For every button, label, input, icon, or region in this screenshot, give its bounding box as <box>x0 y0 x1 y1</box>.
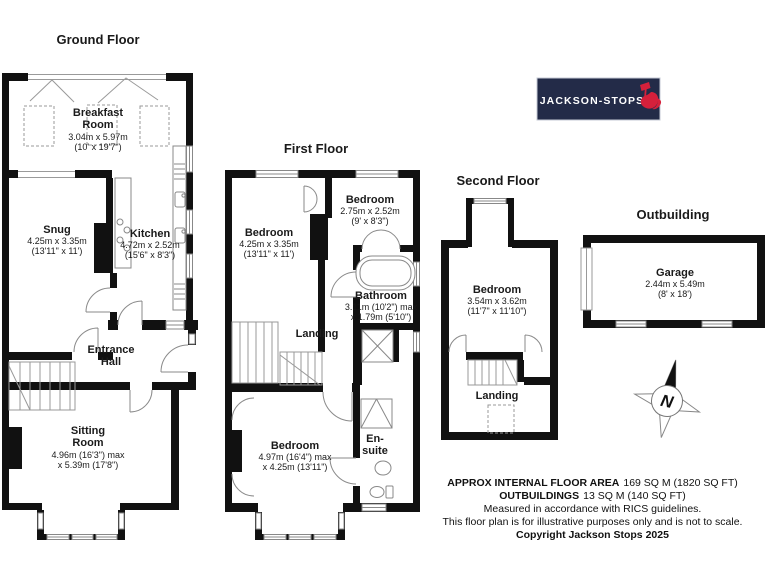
jackson-stops-logo: JACKSON-STOPS <box>537 78 661 120</box>
room-label-bathroom: Bathroom 3.11m (10'2") max x 1.79m (5'10… <box>331 290 431 322</box>
room-dims-imperial: (8' x 18') <box>625 289 725 299</box>
compass-rose: N <box>627 353 709 444</box>
room-name: Landing <box>457 390 537 402</box>
second-floor-title: Second Floor <box>438 173 558 188</box>
room-name: Kitchen <box>102 228 198 240</box>
second-floor-plan <box>441 198 558 440</box>
room-dims-metric: 2.75m x 2.52m <box>320 206 420 216</box>
room-name: Bedroom <box>447 284 547 296</box>
room-dims-imperial: (10' x 19'7") <box>48 142 148 152</box>
room-name: Bedroom <box>219 227 319 239</box>
room-name: Snug <box>12 224 102 236</box>
bathtub-icon <box>356 256 415 290</box>
room-dims-metric: 2.44m x 5.49m <box>625 279 725 289</box>
room-name: Garage <box>625 267 725 279</box>
room-dims-metric: 3.54m x 3.62m <box>447 296 547 306</box>
room-dims-imperial: x 4.25m (13'11") <box>240 462 350 472</box>
outbuildings-label: OUTBUILDINGS <box>499 490 579 502</box>
second-floor-walls <box>441 198 558 440</box>
internal-floor-area-label: APPROX INTERNAL FLOOR AREA <box>447 477 619 489</box>
floor-area-notes: APPROX INTERNAL FLOOR AREA169 SQ M (1820… <box>420 477 765 542</box>
room-label-ensuite: En-suite <box>352 433 398 458</box>
room-dims-imperial: (13'11" x 11') <box>12 246 102 256</box>
outbuildings-value: 13 SQ M (140 SQ FT) <box>583 490 686 502</box>
room-name: Bedroom <box>320 194 420 206</box>
room-dims-metric: 4.97m (16'4") max <box>240 452 350 462</box>
room-dims-imperial: (9' x 8'3") <box>320 216 420 226</box>
room-label-kitchen: Kitchen 4.72m x 2.52m (15'6" x 8'3") <box>102 228 198 260</box>
ground-floor-title: Ground Floor <box>38 32 158 47</box>
loft-hatch <box>488 405 514 433</box>
room-dims-metric: 3.11m (10'2") max <box>331 302 431 312</box>
room-label-snug: Snug 4.25m x 3.35m (13'11" x 11') <box>12 224 102 256</box>
room-name: Landing <box>277 328 357 340</box>
logo-wordmark: JACKSON-STOPS <box>540 95 645 107</box>
room-label-bedroom-1: Bedroom 4.25m x 3.35m (13'11" x 11') <box>219 227 319 259</box>
copyright-note: Copyright Jackson Stops 2025 <box>420 529 765 542</box>
internal-floor-area-value: 169 SQ M (1820 SQ FT) <box>623 477 737 489</box>
internal-floor-area-line: APPROX INTERNAL FLOOR AREA169 SQ M (1820… <box>420 477 765 490</box>
room-label-second-bedroom: Bedroom 3.54m x 3.62m (11'7" x 11'10") <box>447 284 547 316</box>
rics-note: Measured in accordance with RICS guideli… <box>420 503 765 516</box>
room-dims-imperial: x 1.79m (5'10") <box>331 312 431 322</box>
room-label-sitting-room: Sitting Room 4.96m (16'3") max x 5.39m (… <box>33 425 143 470</box>
room-label-breakfast-room: Breakfast Room 3.04m x 5.97m (10' x 19'7… <box>48 107 148 152</box>
garage-door <box>581 248 592 310</box>
room-dims-metric: 4.72m x 2.52m <box>102 240 198 250</box>
second-floor-doors <box>449 335 542 352</box>
room-name: Bedroom <box>240 440 350 452</box>
outbuildings-area-line: OUTBUILDINGS13 SQ M (140 SQ FT) <box>420 490 765 503</box>
room-dims-metric: 4.25m x 3.35m <box>219 239 319 249</box>
room-label-second-landing: Landing <box>457 390 537 402</box>
room-label-entrance-hall: Entrance Hall <box>71 344 151 369</box>
room-dims-imperial: x 5.39m (17'8") <box>33 460 143 470</box>
room-name: Entrance Hall <box>76 344 146 369</box>
room-name: Breakfast Room <box>62 107 134 132</box>
airing-cupboard <box>362 330 393 362</box>
illustrative-note: This floor plan is for illustrative purp… <box>420 516 765 529</box>
room-dims-metric: 3.04m x 5.97m <box>48 132 148 142</box>
outbuilding-title: Outbuilding <box>613 207 733 222</box>
first-floor-title: First Floor <box>256 141 376 156</box>
room-dims-imperial: (15'6" x 8'3") <box>102 250 198 260</box>
room-dims-imperial: (13'11" x 11') <box>219 249 319 259</box>
room-name: Sitting Room <box>61 425 116 450</box>
room-name: Bathroom <box>331 290 431 302</box>
room-label-garage: Garage 2.44m x 5.49m (8' x 18') <box>625 267 725 299</box>
second-floor-windows <box>474 199 506 204</box>
room-name: En-suite <box>355 433 395 458</box>
room-dims-imperial: (11'7" x 11'10") <box>447 306 547 316</box>
floorplan-page: N JACKSON-STOPS Ground Floor First Floor… <box>0 0 768 576</box>
room-dims-metric: 4.96m (16'3") max <box>33 450 143 460</box>
room-dims-metric: 4.25m x 3.35m <box>12 236 102 246</box>
room-label-bedroom-3: Bedroom 4.97m (16'4") max x 4.25m (13'11… <box>240 440 350 472</box>
room-label-bedroom-2: Bedroom 2.75m x 2.52m (9' x 8'3") <box>320 194 420 226</box>
second-floor-staircase <box>468 360 517 385</box>
room-label-first-landing: Landing <box>277 328 357 340</box>
